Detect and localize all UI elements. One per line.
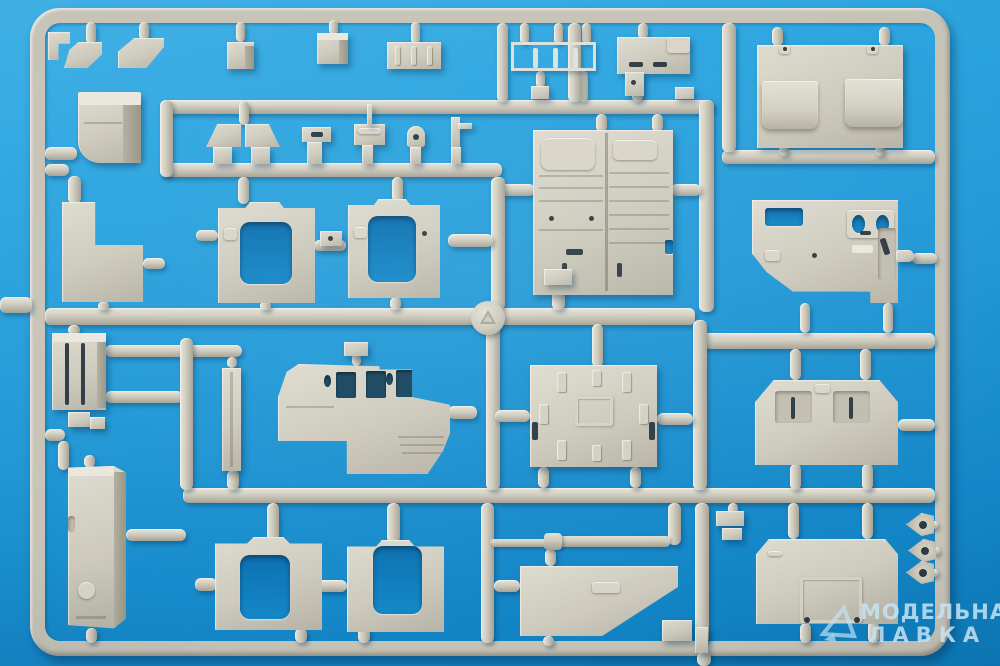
- pin-arm: [458, 123, 472, 129]
- hull-roof-panel-groove: [539, 229, 603, 231]
- periscope-cone-3-dot: [919, 569, 927, 577]
- stub-wing2: [139, 22, 149, 40]
- runner-vc-low: [695, 503, 709, 643]
- ribbed-tray-eslot: [411, 46, 416, 65]
- rear-door-panel-emboss: [768, 551, 782, 556]
- step-bracket: [617, 37, 690, 74]
- gate-door1b-left: [195, 578, 217, 591]
- small-post-part-side: [245, 46, 254, 69]
- hull-roof-panel-emboss: [613, 140, 657, 160]
- hull-roof-panel-groove: [539, 175, 603, 177]
- door-upper-1: [218, 202, 315, 303]
- radiator-part-side: [97, 342, 106, 408]
- stub-strip-bottom: [227, 470, 239, 490]
- periscope-cone-1-dot: [919, 521, 927, 529]
- clip-top-1-dot: [631, 80, 636, 85]
- door-lower-2: [347, 540, 444, 632]
- small-box-part: [317, 33, 348, 64]
- stub-trapdoor-t1: [788, 503, 799, 539]
- top-right-panel-dot: [783, 47, 787, 51]
- stub-tallbox-bottom: [86, 628, 97, 643]
- hull-roof-panel-groove: [609, 228, 669, 230]
- stub-cabside-right: [448, 406, 477, 419]
- hull-roof-panel-dot: [589, 216, 594, 221]
- door-lower-1: [215, 537, 322, 630]
- runner-vl-mid2: [486, 324, 500, 490]
- small-box-bottom: [662, 620, 692, 641]
- stub-trapdoor-b1: [800, 623, 811, 643]
- roof-rack-bar: [553, 48, 558, 68]
- stub-trap-left: [494, 580, 520, 592]
- stub-lpanel-rail: [45, 164, 69, 176]
- stub-sqpanel-top: [592, 324, 603, 367]
- gate-foot-1: [213, 147, 232, 164]
- stub-door1t-top: [238, 177, 249, 204]
- stub-cabfront-t2: [860, 349, 871, 380]
- cab-side-panel-win: [386, 373, 393, 385]
- roof-rack-bar: [533, 48, 538, 68]
- hatch-square-panel-slot: [649, 422, 655, 440]
- hatch-square-panel-slot: [532, 422, 538, 440]
- dome-part-dot: [413, 134, 419, 140]
- cab-front-panel-emboss: [815, 384, 830, 393]
- gun-rod-rodbar: [560, 536, 670, 547]
- runner-vc-upper: [699, 100, 714, 312]
- runner-radiator-2: [105, 391, 183, 403]
- stub-sidepart-b1: [800, 303, 810, 333]
- stub-lpanel-bottom: [98, 302, 109, 310]
- hatch-square-panel: [530, 365, 657, 467]
- stub-door2t-bottom: [390, 297, 401, 310]
- runner-h2-right: [695, 333, 935, 349]
- hatch-square-panel-frame-e: [575, 396, 613, 426]
- gate-foot-4: [362, 145, 373, 164]
- tall-box-part-recess: [68, 516, 75, 532]
- radiator-part-slot: [81, 343, 85, 405]
- hatch-square-panel-eslot: [639, 404, 648, 424]
- runner-h1-right: [722, 150, 935, 164]
- runner-h3: [183, 488, 935, 503]
- dome-part: [407, 126, 425, 147]
- antenna-base-part: [354, 124, 385, 145]
- stub-roofpanel-right: [671, 184, 701, 196]
- stub-door2t-top: [392, 177, 403, 202]
- hull-roof-panel-groove: [539, 200, 603, 202]
- stub-door2b-top: [387, 503, 400, 543]
- step-bracket-emboss: [667, 37, 690, 53]
- fender-part-groove: [84, 122, 122, 124]
- ladder-block: [531, 86, 549, 99]
- stub-strip-top: [227, 357, 237, 368]
- ribbed-tray-eslot: [395, 46, 400, 65]
- small-post-part: [227, 42, 254, 69]
- step-bracket-slot: [653, 62, 667, 67]
- hull-side-complex-hole: [765, 208, 803, 226]
- door-upper-2-dot: [422, 231, 427, 236]
- small-wing-clip: [344, 342, 368, 356]
- hull-roof-panel-groove: [609, 172, 669, 174]
- fender-part: [78, 92, 141, 163]
- hull-roof-panel-hole: [665, 240, 673, 254]
- box-top-2: [675, 87, 694, 99]
- hull-roof-panel-slot: [566, 249, 583, 255]
- stub-lpanel-top: [68, 176, 81, 204]
- runner-vl-mid: [491, 177, 505, 310]
- cab-front-panel-slot: [849, 397, 853, 419]
- cab-side-panel-win: [336, 372, 356, 398]
- door-upper-2-hole: [368, 216, 416, 282]
- stub-trapdoor-b2: [868, 621, 879, 643]
- door-upper-2-emboss: [354, 227, 367, 238]
- stub-ladder-2: [554, 23, 563, 44]
- pin-part: [451, 117, 460, 147]
- stub-door1t-bottom: [260, 302, 271, 310]
- stub-ladder-3: [582, 23, 591, 44]
- door-lower-2-hole: [373, 546, 422, 614]
- gate-foot-2: [251, 147, 270, 164]
- runner-h2-left: [45, 308, 695, 325]
- hull-roof-panel-groove: [609, 186, 669, 188]
- gate-lpanel-right: [143, 258, 165, 269]
- top-right-panel-dot: [871, 47, 875, 51]
- small-box-part-side: [339, 40, 348, 64]
- rear-door-panel: [756, 539, 898, 624]
- hull-roof-panel-groove: [539, 187, 603, 189]
- periscope-cone-2-dot: [921, 547, 929, 555]
- stub-sidepart-b2: [883, 303, 893, 333]
- gate-door1t-left: [196, 230, 218, 241]
- step-bracket-slot: [629, 62, 643, 67]
- clip-top-1: [625, 72, 644, 96]
- stub-cabfront-b1: [790, 464, 801, 490]
- runner-vb-right: [722, 23, 736, 152]
- cab-side-panel-groove: [402, 452, 444, 454]
- stub-post-mid: [239, 101, 249, 125]
- antenna-rod: [367, 104, 372, 125]
- hatch-square-panel-eslot: [622, 440, 631, 460]
- stub-tallbox-top: [84, 455, 95, 468]
- hull-side-complex-slot: [860, 231, 871, 235]
- stub-sqpanel-left: [495, 410, 530, 422]
- small-box-part-light: [317, 33, 348, 40]
- gate-foot-6: [451, 147, 461, 164]
- radiator-part-light: [52, 333, 106, 342]
- stub-sqpanel-right: [657, 413, 693, 425]
- rear-door-panel-dot: [854, 617, 860, 623]
- runner-vc-mid: [693, 320, 707, 490]
- cab-front-panel: [755, 380, 898, 465]
- door-upper-2: [348, 199, 440, 298]
- plate-with-slot-slot: [311, 132, 323, 137]
- small-clip-left-1: [68, 412, 90, 427]
- stub-wing1: [86, 22, 96, 44]
- hatch-square-panel-eslot: [592, 370, 601, 386]
- ribbed-tray-eslot: [427, 46, 432, 65]
- runner-parts-row: [160, 163, 502, 177]
- door-upper-1-emboss: [224, 228, 237, 240]
- runner-radiator-1: [105, 345, 242, 357]
- stub-sidepart-right: [912, 253, 937, 264]
- hull-side-complex-emboss: [765, 250, 780, 261]
- stub-bottom-out: [697, 652, 711, 666]
- elbow-clip: [544, 269, 572, 285]
- stub-tray: [411, 22, 420, 44]
- hull-roof-panel-emboss: [541, 138, 595, 170]
- hatch-square-panel-eslot: [557, 372, 566, 392]
- gate-foot-3: [307, 142, 322, 164]
- gate-foot-5: [410, 147, 421, 164]
- hull-side-complex-light: [852, 245, 873, 253]
- stub-ladder-1: [520, 23, 529, 44]
- stub-door1b-bottom: [295, 628, 307, 643]
- door-mid-clip-dot: [328, 236, 333, 241]
- radiator-part-slot: [65, 343, 69, 405]
- antenna-base-part-emboss: [358, 128, 381, 134]
- gate-left-outer: [0, 297, 32, 313]
- cab-side-panel-win: [366, 371, 386, 398]
- logo-junction-circle: [471, 301, 505, 335]
- door-mid-clip: [320, 231, 342, 246]
- gate-door2t-right: [448, 234, 493, 247]
- cab-side-panel-groove: [400, 444, 444, 446]
- hatch-square-panel-eslot: [622, 372, 631, 392]
- stub-panel9-t2: [879, 27, 890, 46]
- hull-roof-panel-line: [605, 133, 608, 291]
- top-right-panel: [757, 45, 903, 148]
- top-right-panel-hood: [762, 81, 818, 129]
- clip-part-b: [722, 528, 742, 540]
- gun-rod: [490, 533, 670, 550]
- small-clip-left-2: [90, 417, 105, 429]
- stub-cabfront-t1: [790, 349, 801, 380]
- hull-roof-panel-slot: [617, 263, 622, 277]
- sprue-photo: МОДЕЛЬНАЯ ЛАВКА: [0, 0, 1000, 666]
- cab-front-panel-slot: [791, 397, 795, 419]
- ribbed-tray: [387, 42, 441, 69]
- cab-side-panel-groove: [398, 436, 444, 438]
- gate-tallbox-right: [126, 529, 186, 541]
- hull-roof-panel-groove: [609, 242, 669, 244]
- stub-sqpanel-b1: [538, 467, 549, 488]
- cab-side-panel-groove: [286, 406, 334, 408]
- stub-tpart: [236, 22, 245, 42]
- stub-ladder-left: [497, 23, 508, 102]
- runner-vl-low: [481, 503, 494, 643]
- hull-roof-panel-groove: [609, 214, 669, 216]
- hull-roof-panel-dot: [549, 216, 554, 221]
- roof-rack-bar: [573, 48, 578, 68]
- gun-rod-rodbar: [544, 533, 562, 550]
- hull-side-complex-dot: [812, 253, 817, 258]
- rear-door-panel-frame-e: [800, 577, 862, 623]
- bullet-gate: [896, 250, 914, 262]
- pillar-strip-groove: [230, 372, 233, 467]
- fender-part-side: [123, 105, 141, 163]
- door-lower-1-hole: [240, 555, 290, 619]
- tiny-t-part: [695, 627, 708, 653]
- rear-door-panel-dot: [804, 617, 810, 623]
- runner-va-left: [180, 338, 193, 490]
- stub-left-low: [45, 429, 65, 441]
- roof-rack: [511, 42, 596, 71]
- plate-with-slot: [302, 127, 331, 142]
- hatch-square-panel-eslot: [592, 445, 601, 461]
- stub-panel9-t1: [772, 27, 783, 46]
- pillar-strip: [222, 368, 241, 471]
- stub-trapdoor-t2: [862, 503, 873, 539]
- stub-cabfront-right: [898, 419, 935, 431]
- clip-part-a: [716, 511, 744, 526]
- tall-box-part-side: [114, 472, 126, 626]
- top-right-panel-hood: [845, 79, 903, 127]
- hull-roof-panel-groove: [609, 200, 669, 202]
- hatch-square-panel-eslot: [557, 440, 566, 460]
- stub-fender-v: [160, 100, 173, 177]
- stub-cabfront-b2: [862, 464, 873, 490]
- stub-left-low2: [58, 441, 69, 470]
- hatch-square-panel-eslot: [539, 404, 548, 424]
- cab-side-panel-win: [324, 375, 331, 387]
- stub-sqpanel-b2: [630, 467, 641, 488]
- tall-box-part-groove: [76, 616, 106, 619]
- stub-fender-rail: [45, 147, 77, 160]
- tall-box-part: [68, 466, 126, 630]
- radiator-part: [52, 333, 106, 410]
- tall-box-part-light: [68, 466, 114, 476]
- stub-trap-bottom: [543, 636, 554, 646]
- fender-part-light: [78, 92, 141, 105]
- door-upper-1-hole: [240, 222, 292, 284]
- tall-box-part-emboss: [78, 582, 95, 599]
- stub-trap-top: [545, 549, 556, 566]
- hull-lower-trapezoid-emboss: [592, 582, 620, 593]
